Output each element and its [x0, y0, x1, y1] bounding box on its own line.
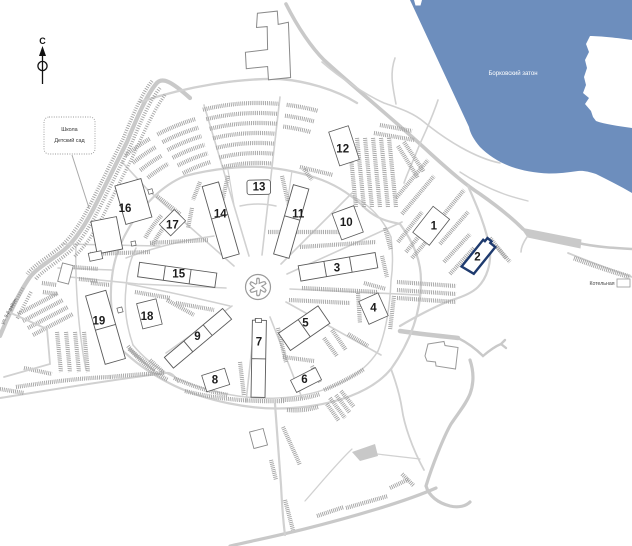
svg-text:13: 13 [253, 182, 266, 194]
svg-text:12: 12 [336, 143, 349, 155]
svg-text:4: 4 [370, 303, 377, 315]
svg-text:Борковский затон: Борковский затон [488, 70, 537, 77]
svg-text:3: 3 [334, 263, 340, 275]
svg-text:Котельная: Котельная [589, 281, 614, 287]
svg-text:9: 9 [194, 331, 200, 343]
svg-text:7: 7 [256, 337, 262, 349]
svg-text:5: 5 [302, 318, 309, 330]
svg-text:1: 1 [431, 221, 438, 233]
svg-text:17: 17 [166, 219, 179, 231]
svg-text:8: 8 [212, 375, 219, 387]
svg-text:2: 2 [474, 252, 480, 264]
svg-text:Детский сад: Детский сад [54, 137, 85, 144]
svg-text:11: 11 [292, 208, 305, 220]
svg-text:16: 16 [119, 203, 132, 215]
svg-text:15: 15 [172, 268, 185, 280]
svg-text:10: 10 [340, 217, 353, 229]
svg-text:18: 18 [141, 311, 154, 323]
svg-text:6: 6 [301, 374, 307, 386]
svg-text:С: С [39, 36, 46, 46]
svg-text:14: 14 [214, 208, 227, 220]
svg-text:Школа: Школа [61, 127, 77, 133]
svg-text:19: 19 [93, 316, 106, 328]
